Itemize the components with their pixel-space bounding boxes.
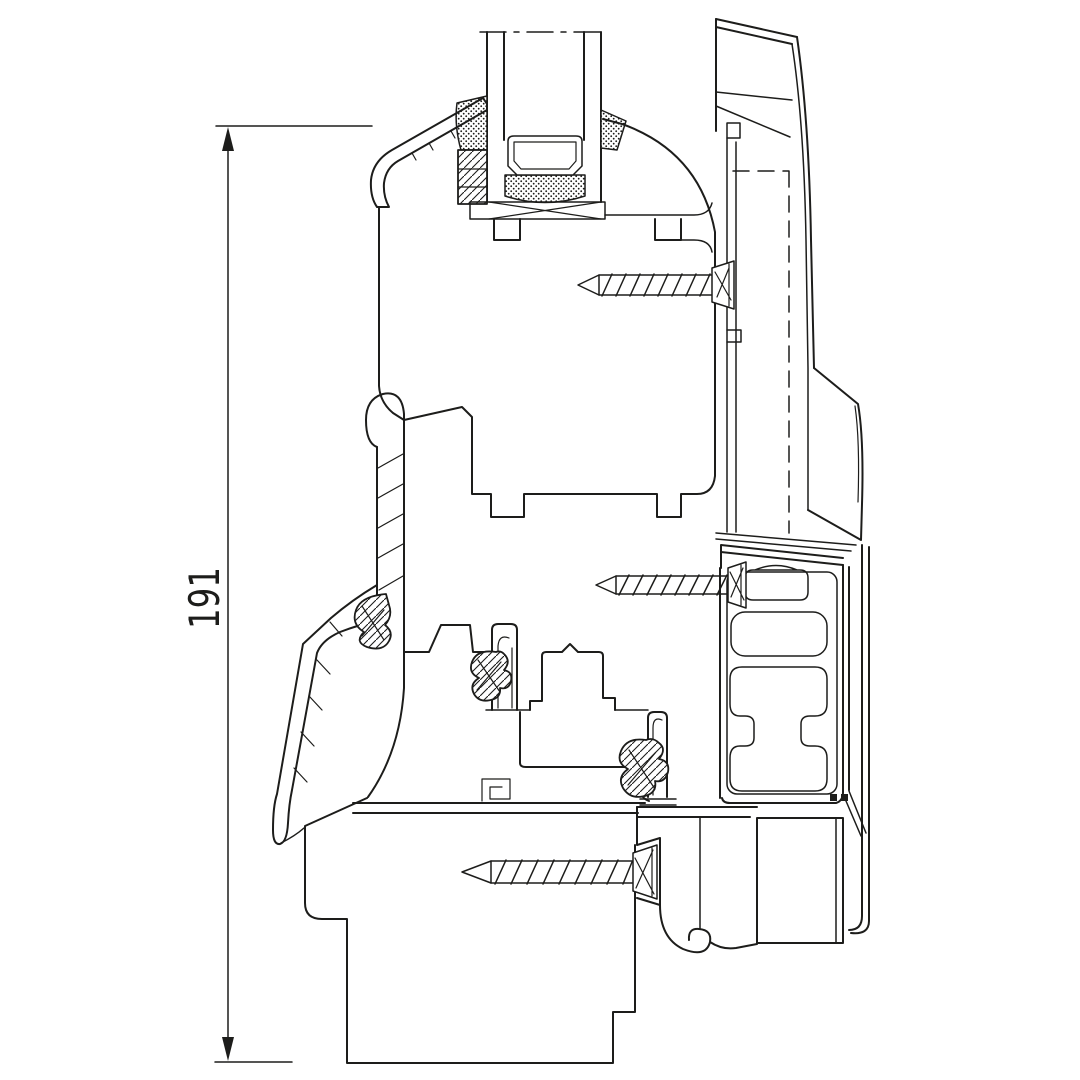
center-plateau <box>530 644 615 710</box>
cladding-clip-notch <box>727 123 740 138</box>
upstand-hatch-ticks <box>378 454 403 590</box>
screw-top <box>578 261 734 309</box>
cladding-bracket <box>727 330 741 342</box>
chamber-slot-h <box>730 667 827 791</box>
upstand-bulge <box>366 393 404 447</box>
bead-foot-section <box>458 150 487 204</box>
cladding-bump <box>808 368 863 540</box>
cladding-bump-inner <box>855 406 859 502</box>
block-outline <box>305 798 635 1063</box>
screw-bottom <box>462 845 657 899</box>
center-gasket-upper <box>471 651 511 700</box>
dimension-arrow-up-icon <box>222 127 234 151</box>
screw-middle <box>596 562 746 608</box>
sealant-right <box>601 110 626 150</box>
cladding-inner-verticals <box>727 138 736 532</box>
drawing-canvas: 191 <box>0 0 1080 1080</box>
dimension-annotation: 191 <box>180 126 372 1062</box>
hidden-lines <box>733 171 789 533</box>
sash-gasket <box>355 594 391 649</box>
edge-sealant <box>505 175 585 203</box>
setting-block-cross <box>489 202 601 219</box>
glass-seat-ledge <box>605 203 712 252</box>
profile-logo-mark <box>482 779 510 801</box>
sash-aluminium-cladding <box>716 19 863 540</box>
outer-skin <box>849 545 869 933</box>
insulated-glass-unit <box>456 32 712 252</box>
seat-tenons <box>494 219 681 240</box>
chamber-detail-left <box>830 794 837 801</box>
chamber-slot-middle <box>731 612 827 656</box>
chamber-slot-top <box>745 566 808 601</box>
cladding-joint-lines <box>716 533 856 551</box>
frame-left-face <box>368 652 404 797</box>
cross-section-svg: 191 <box>0 0 1080 1080</box>
center-gasket-lower <box>620 739 669 797</box>
dimension-label: 191 <box>180 567 229 629</box>
dimension-arrow-down-icon <box>222 1037 234 1061</box>
drip-to-block-link <box>281 828 304 843</box>
frame-top-left-steps <box>404 625 492 652</box>
block-top-lines <box>353 803 645 813</box>
drip-hatch-ticks <box>294 622 342 782</box>
clip-hook <box>660 905 757 952</box>
sill-adapter <box>757 818 843 943</box>
clip-top-plate <box>637 807 757 817</box>
cladding-top-edges <box>716 19 797 44</box>
